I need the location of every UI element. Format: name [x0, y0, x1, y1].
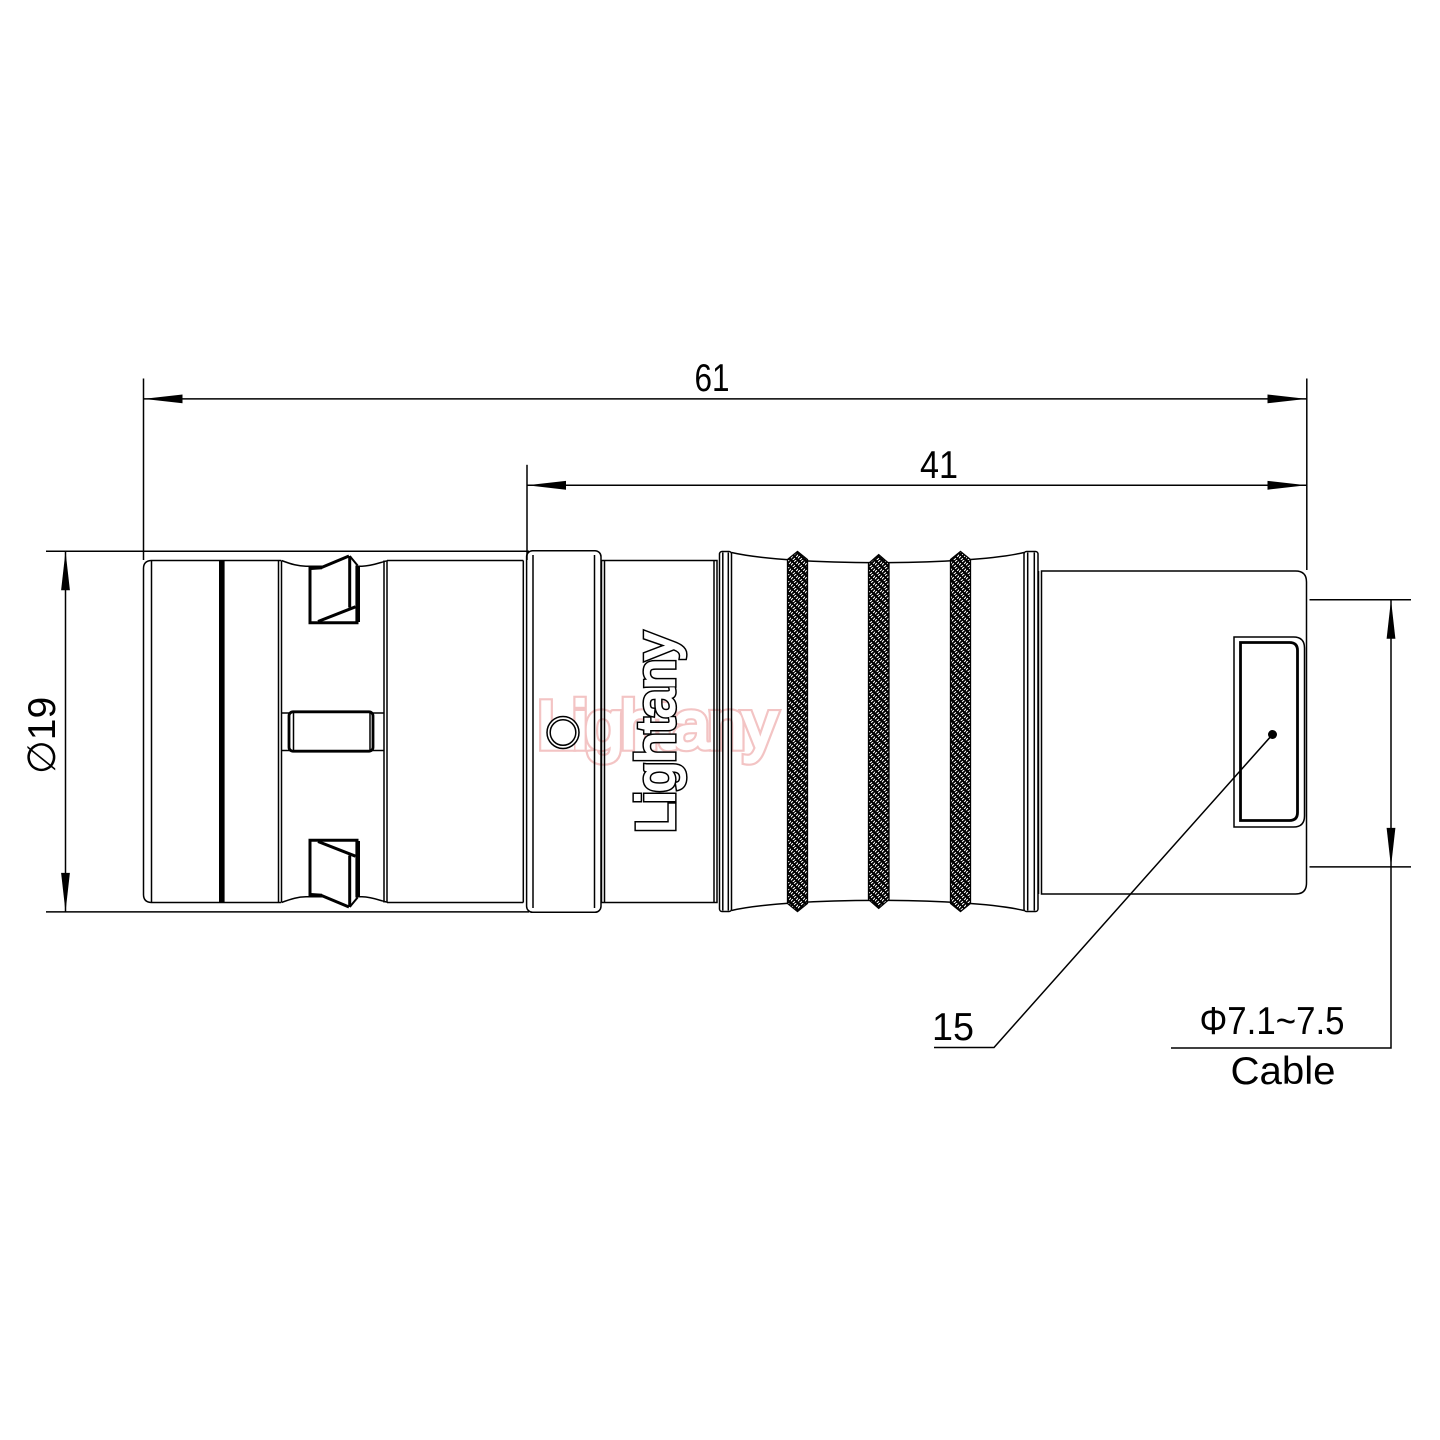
svg-text:Lightany: Lightany [626, 632, 686, 833]
svg-text:61: 61 [695, 357, 730, 400]
svg-text:∅19: ∅19 [21, 697, 64, 774]
svg-text:Φ7.1~7.5: Φ7.1~7.5 [1200, 1000, 1345, 1043]
svg-text:Cable: Cable [1231, 1050, 1336, 1093]
svg-text:41: 41 [920, 444, 958, 487]
svg-text:15: 15 [932, 1006, 974, 1049]
